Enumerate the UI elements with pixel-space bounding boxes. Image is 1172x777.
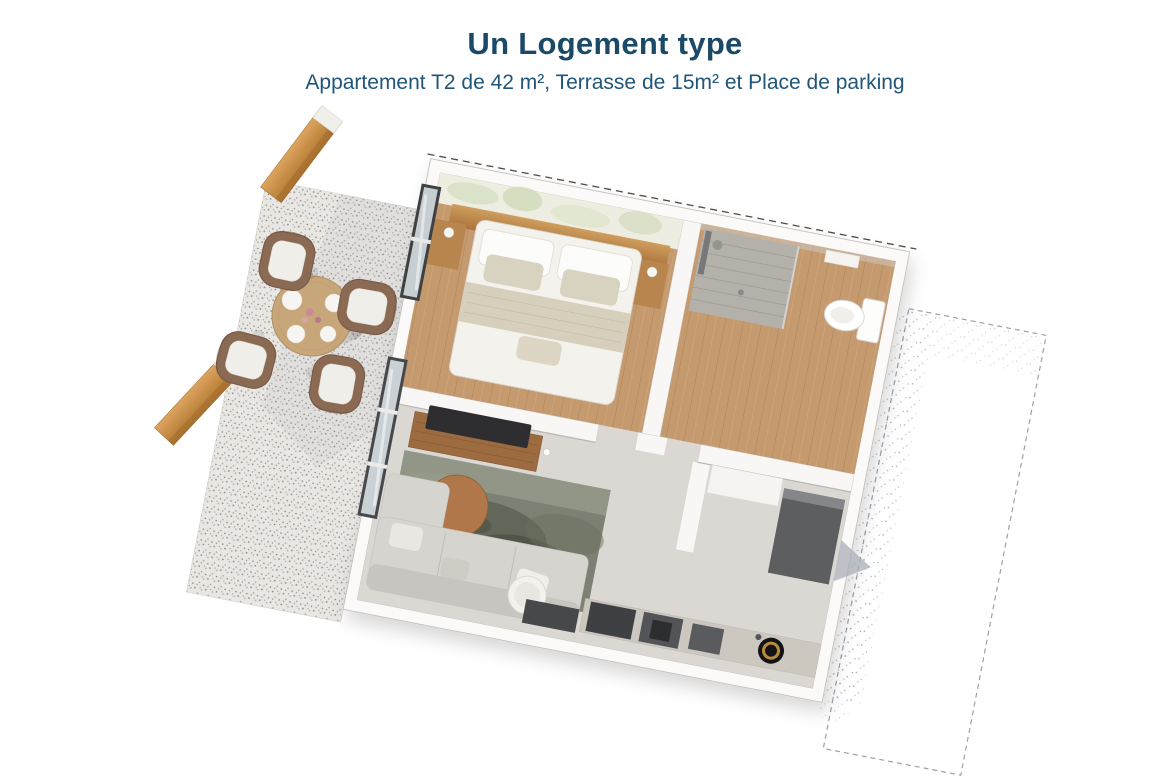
plate: [320, 326, 336, 342]
flower-decor: [306, 308, 314, 316]
plate: [287, 325, 305, 343]
apartment-and-parking: [331, 154, 1058, 775]
slide: Un Logement type Appartement T2 de 42 m²…: [0, 0, 1172, 777]
flower-decor: [315, 317, 321, 323]
floor-plan-illustration: [0, 0, 1172, 777]
plate: [282, 290, 302, 310]
flower-decor: [302, 317, 308, 323]
